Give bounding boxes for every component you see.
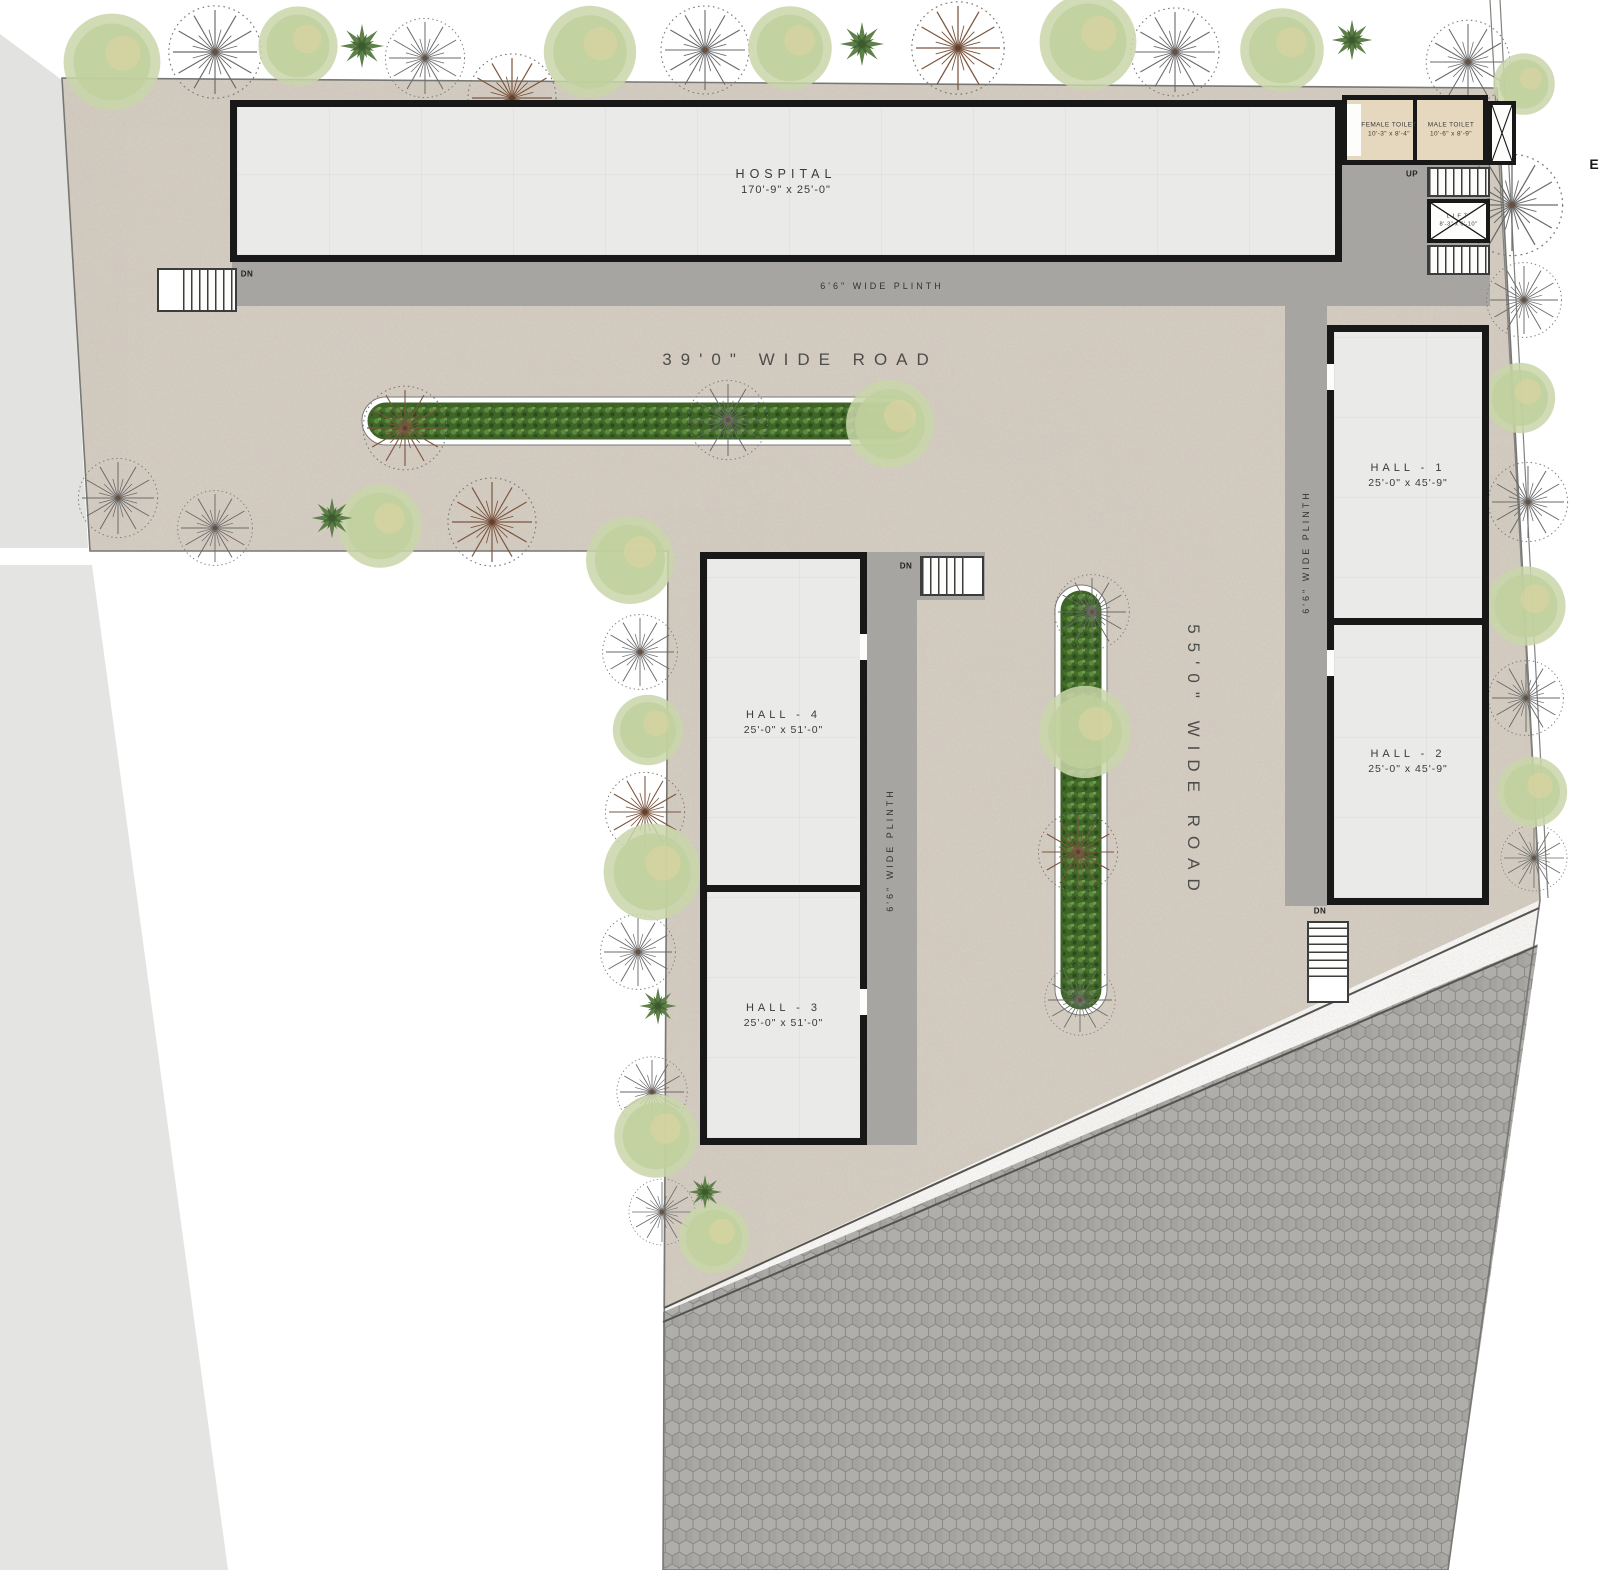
hospital-label: HOSPITAL bbox=[736, 167, 837, 181]
hall-divider-wall bbox=[707, 885, 860, 892]
hall-4-room: HALL - 4 25'-0" x 51'-0" bbox=[707, 559, 860, 885]
hall-4-dims: 25'-0" x 51'-0" bbox=[744, 724, 824, 736]
door-opening bbox=[860, 634, 867, 660]
plinth-label-left: 6'6" WIDE PLINTH bbox=[885, 788, 895, 911]
plinth-label-top: 6'6" WIDE PLINTH bbox=[820, 281, 943, 291]
duct-shaft bbox=[1488, 101, 1516, 165]
stair-down-label: DN bbox=[241, 270, 254, 279]
hall-3-4-building: HALL - 4 25'-0" x 51'-0" HALL - 3 25'-0"… bbox=[700, 552, 867, 1145]
stair-up-label: UP bbox=[1406, 170, 1418, 179]
entry-stair-center bbox=[920, 556, 984, 596]
entry-stair-southeast bbox=[1307, 921, 1349, 1003]
median-planter-vertical bbox=[1055, 585, 1107, 1015]
door-opening bbox=[1327, 364, 1334, 390]
hall-2-dims: 25'-0" x 45'-9" bbox=[1368, 763, 1448, 775]
hall-1-label: HALL - 1 bbox=[1370, 462, 1445, 474]
boundary-edge-label: E bbox=[1589, 156, 1598, 172]
lift-shaft: LIFT 8'-3" x 6'-10" bbox=[1427, 199, 1490, 243]
hall-2-room: HALL - 2 25'-0" x 45'-9" bbox=[1334, 625, 1482, 898]
hall-4-label: HALL - 4 bbox=[746, 709, 821, 721]
door-opening bbox=[1327, 650, 1334, 676]
hall-3-label: HALL - 3 bbox=[746, 1002, 821, 1014]
hall-1-room: HALL - 1 25'-0" x 45'-9" bbox=[1334, 332, 1482, 618]
hall-3-room: HALL - 3 25'-0" x 51'-0" bbox=[707, 892, 860, 1138]
adjacent-parcel-southwest bbox=[0, 565, 228, 1570]
lift-label: LIFT 8'-3" x 6'-10" bbox=[1431, 213, 1486, 230]
plinth-label-right: 6'6" WIDE PLINTH bbox=[1301, 490, 1311, 613]
entry-stair-northwest bbox=[157, 268, 237, 312]
core-stair-upper bbox=[1427, 167, 1490, 197]
hall-3-dims: 25'-0" x 51'-0" bbox=[744, 1017, 824, 1029]
toilet-block: FEMALE TOILET 10'-3" x 8'-4" MALE TOILET… bbox=[1342, 95, 1488, 165]
hall-divider-wall bbox=[1334, 618, 1482, 625]
hall-1-dims: 25'-0" x 45'-9" bbox=[1368, 477, 1448, 489]
stair-down-label: DN bbox=[1314, 907, 1327, 916]
toilet-fixture-strip bbox=[1347, 104, 1361, 156]
stair-down-label: DN bbox=[900, 562, 913, 571]
road-label-55: 55'0" WIDE ROAD bbox=[1183, 624, 1203, 900]
hall-1-2-building: HALL - 1 25'-0" x 45'-9" HALL - 2 25'-0"… bbox=[1327, 325, 1489, 905]
hall-2-label: HALL - 2 bbox=[1370, 748, 1445, 760]
hospital-building: HOSPITAL 170'-9" x 25'-0" bbox=[230, 100, 1342, 262]
hospital-dims: 170'-9" x 25'-0" bbox=[741, 184, 831, 196]
female-toilet-label: FEMALE TOILET 10'-3" x 8'-4" bbox=[1361, 121, 1417, 140]
male-toilet-label: MALE TOILET 10'-6" x 8'-9" bbox=[1428, 121, 1474, 140]
door-opening bbox=[860, 989, 867, 1015]
core-stair-lower bbox=[1427, 245, 1490, 275]
site-plan-canvas: HOSPITAL 170'-9" x 25'-0" FEMALE TOILET … bbox=[0, 0, 1600, 1570]
road-label-39: 39'0" WIDE ROAD bbox=[662, 350, 938, 370]
